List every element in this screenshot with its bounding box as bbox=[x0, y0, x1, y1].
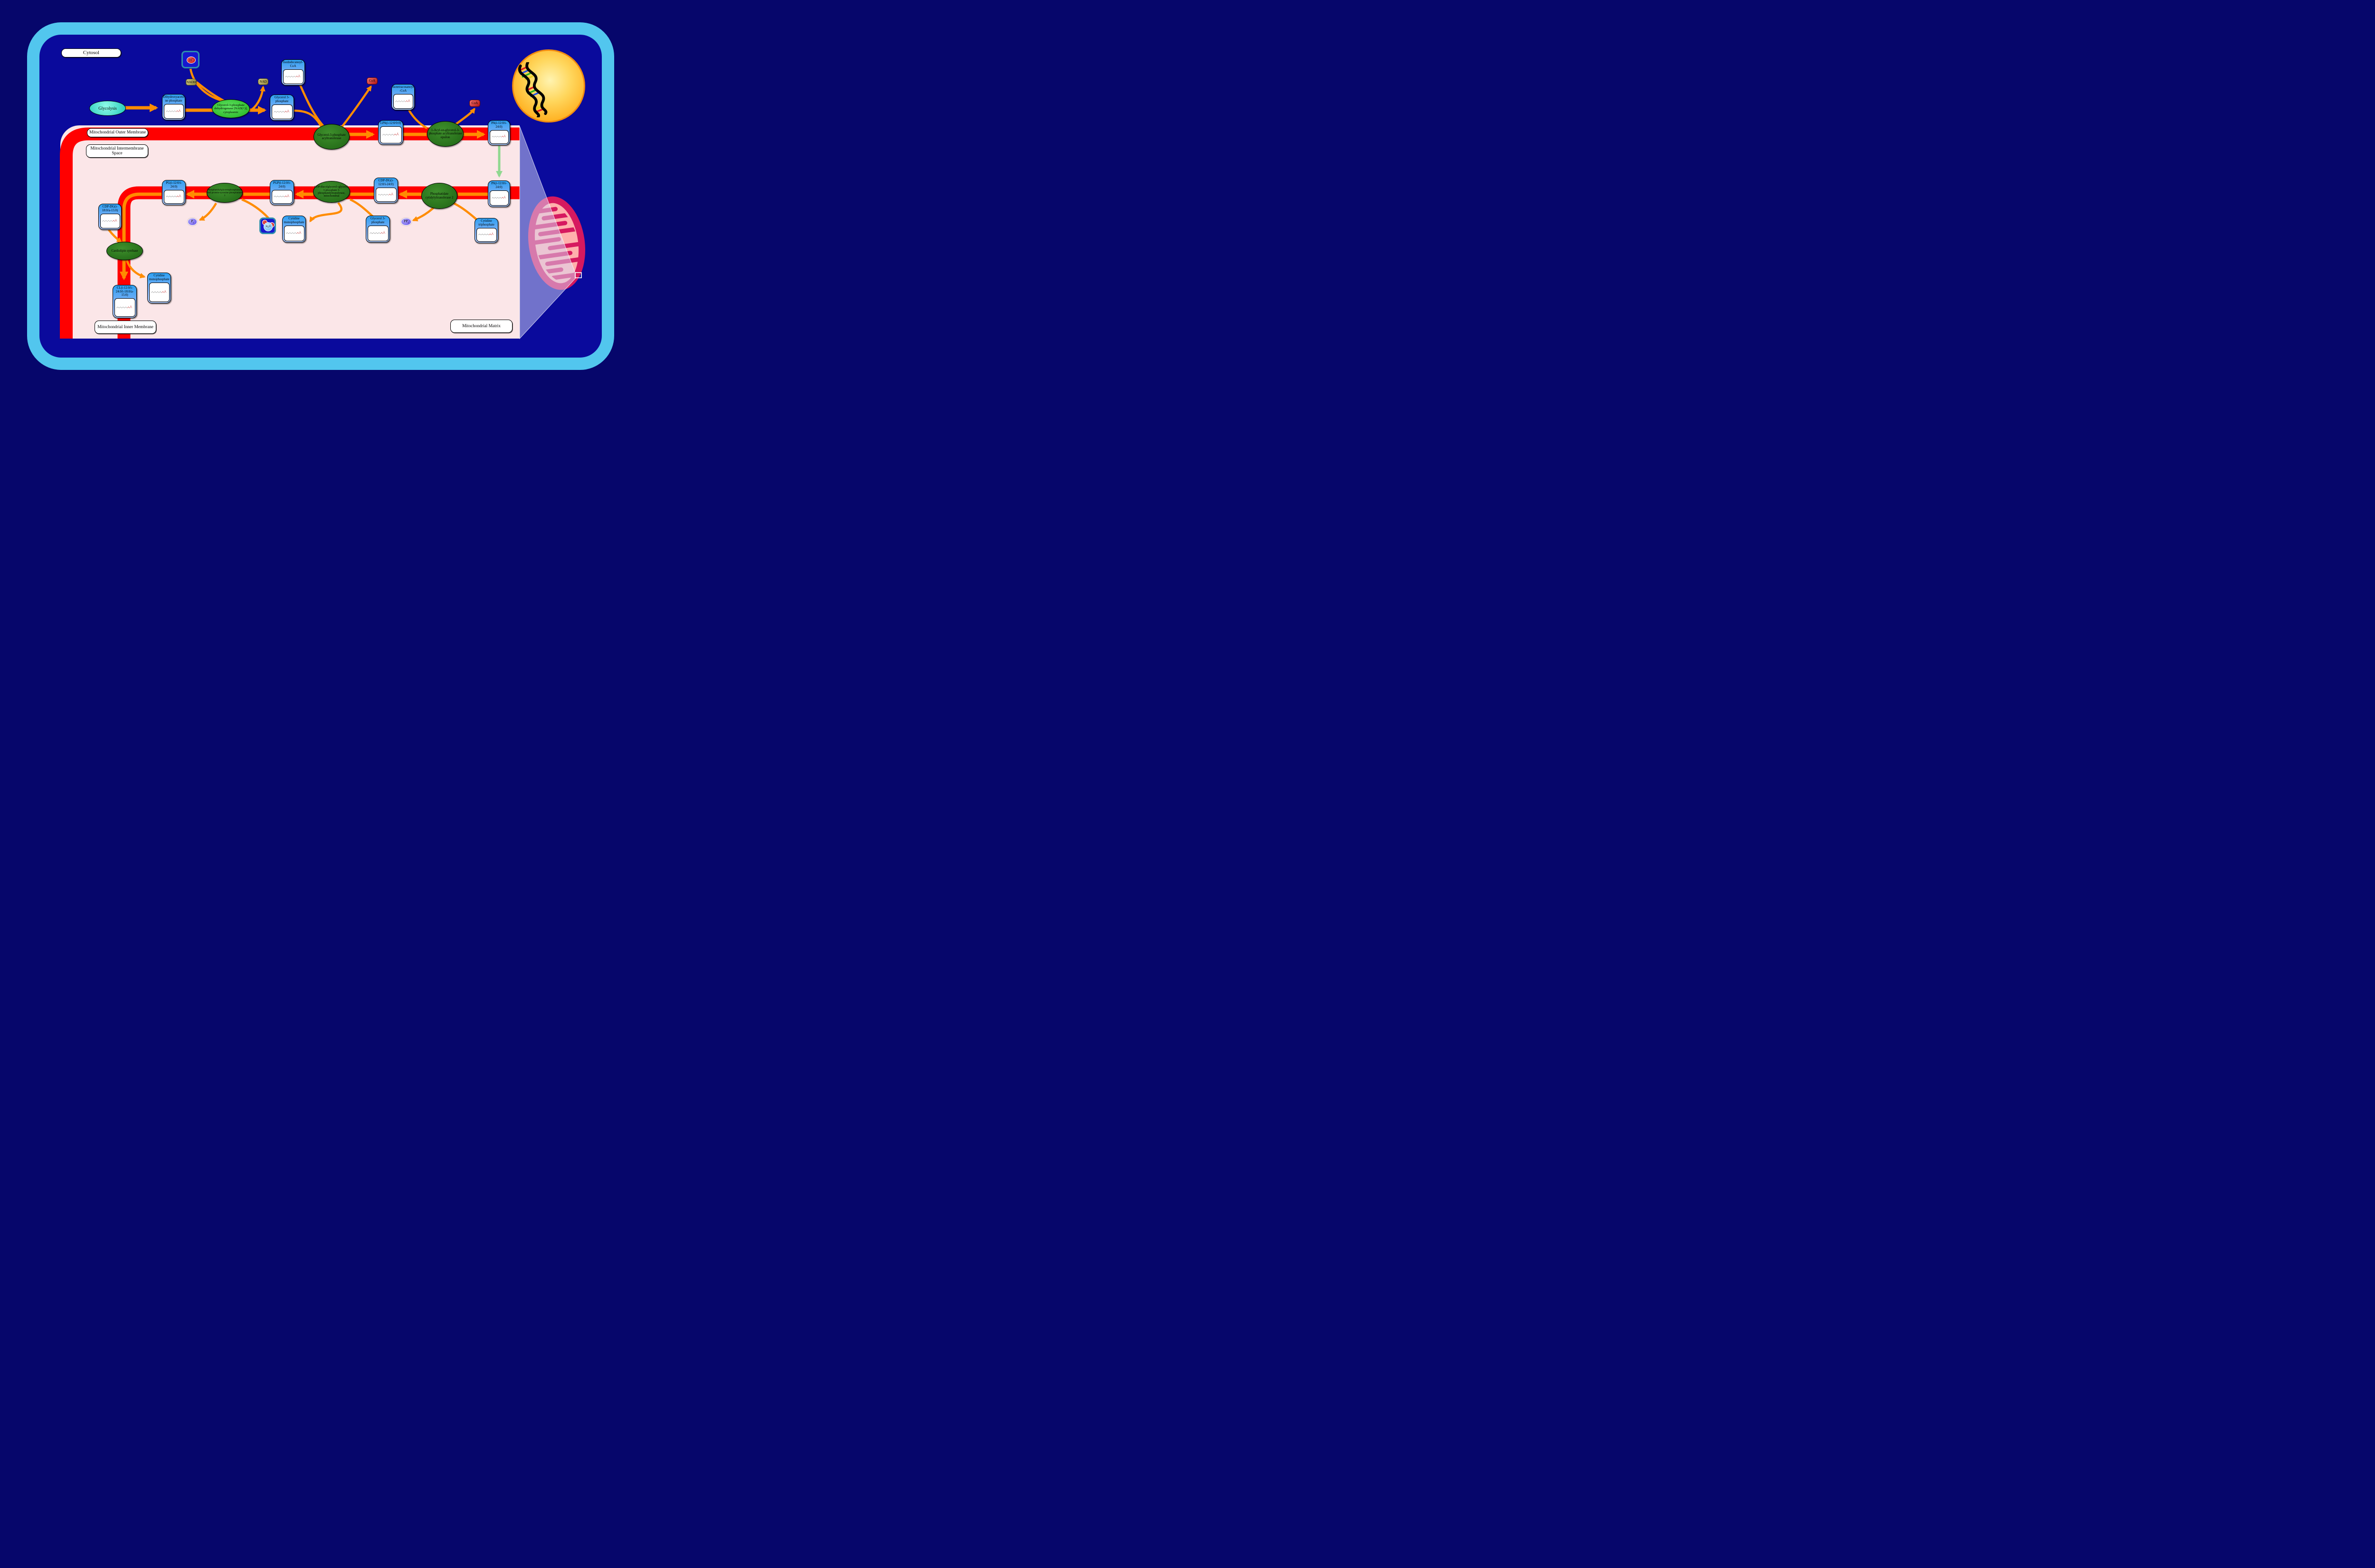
nucleus-illustration bbox=[512, 49, 585, 123]
cofactor-proton[interactable]: H+ bbox=[181, 51, 199, 68]
molecule-structure bbox=[395, 97, 411, 105]
molecule-structure bbox=[491, 194, 507, 202]
metabolite-pa-outer[interactable]: PA(i-12:0/i-24:0) bbox=[488, 120, 510, 145]
label-outer-membrane: Mitochondrial Outer Membrane bbox=[87, 128, 148, 137]
molecule-structure bbox=[491, 133, 507, 141]
metabolite-cmp-pgs[interactable]: Cytidine monophosphate bbox=[282, 216, 306, 243]
metabolite-pa-inner[interactable]: PA(i-12:0/i-24:0) bbox=[488, 180, 510, 207]
molecule-structure bbox=[273, 193, 290, 200]
metabolite-isotetracosanoyl-coa[interactable]: Isotetracosanoyl-CoA bbox=[391, 84, 415, 110]
cofactor-coa-gpat[interactable]: CoA bbox=[367, 77, 378, 85]
molecule-structure bbox=[478, 231, 494, 238]
cofactor-nad[interactable]: NAD bbox=[258, 78, 268, 85]
metabolite-cl[interactable]: CL(i-12:0/i-24:0/i-18:0/a-15:0) bbox=[113, 285, 137, 318]
cofactor-ppi[interactable]: PPi bbox=[401, 218, 411, 226]
enzyme-pgs1[interactable]: CDP-diacylglycerol--glycerol-3-phosphate… bbox=[313, 181, 350, 203]
metabolite-lpa[interactable]: LPA(i-12:0/0:0) bbox=[378, 120, 403, 145]
label-cytosol: Cytosol bbox=[61, 48, 121, 57]
cofactor-water[interactable]: H2O bbox=[259, 217, 276, 234]
pathway-canvas: Cytosol Mitochondrial Outer Membrane Mit… bbox=[0, 0, 641, 392]
process-glycolysis[interactable]: Glycolysis bbox=[89, 101, 126, 116]
metabolite-ctp[interactable]: Cytidine triphosphate bbox=[475, 218, 498, 243]
cofactor-nadh[interactable]: NADH bbox=[186, 79, 197, 85]
label-intermembrane-space: Mitochondrial Intermembrane Space bbox=[86, 144, 148, 158]
metabolite-cdp-dg[interactable]: CDP-DG(i-12:0/i-24:0) bbox=[374, 178, 398, 203]
molecule-structure bbox=[369, 229, 386, 237]
molecule-structure bbox=[165, 107, 181, 115]
metabolite-cdp-dg-2[interactable]: CDP-DG(i-18:0/a-15:0) bbox=[98, 204, 122, 230]
metabolite-cmp-cls[interactable]: Cytidine monophosphate bbox=[147, 273, 171, 303]
label-inner-membrane: Mitochondrial Inner Membrane bbox=[95, 321, 156, 334]
label-matrix: Mitochondrial Matrix bbox=[450, 320, 513, 333]
enzyme-cardiolipin-synthase[interactable]: Cardiolipin synthase bbox=[106, 242, 143, 260]
dna-helix-icon bbox=[516, 62, 550, 117]
molecule-structure bbox=[377, 191, 394, 198]
molecule-structure bbox=[102, 217, 118, 225]
metabolite-pg[interactable]: PG(i-12:0/i-24:0) bbox=[162, 180, 186, 205]
metabolite-isododecanoyl-coa[interactable]: Isododecanoyl-CoA bbox=[281, 59, 305, 85]
enzyme-ptpmt1[interactable]: Phosphatidylglycerophosphatase and prote… bbox=[207, 183, 243, 203]
molecule-structure bbox=[382, 130, 400, 139]
enzyme-agpat-epsilon[interactable]: 1-Acyl-sn-glycerol-3-phosphate acyltrans… bbox=[427, 121, 464, 147]
molecule-structure bbox=[116, 302, 133, 312]
molecule-structure bbox=[285, 229, 302, 237]
molecule-structure bbox=[285, 73, 301, 81]
metabolite-pgp[interactable]: PGP(i-12:0/i-24:0) bbox=[270, 180, 294, 205]
molecule-structure bbox=[151, 287, 167, 297]
enzyme-gpd1[interactable]: Glycerol-3-phosphate dehydrogenase [NAD(… bbox=[212, 99, 250, 118]
metabolite-g3p-matrix[interactable]: Glycerol 3-phosphate bbox=[366, 216, 390, 243]
cofactor-coa-agpat[interactable]: CoA bbox=[469, 100, 480, 107]
metabolite-g3p-cytosol[interactable]: Glycerol 3-phosphate bbox=[270, 94, 294, 121]
molecule-structure bbox=[165, 193, 182, 200]
proton-icon: H+ bbox=[187, 57, 196, 64]
enzyme-pcyt2[interactable]: Phosphatidate cytidylyltransferase 2 bbox=[421, 183, 457, 209]
cofactor-pi[interactable]: Pi bbox=[188, 218, 197, 226]
molecule-structure bbox=[273, 108, 290, 116]
water-molecule-icon: H2O bbox=[264, 222, 273, 231]
metabolite-dhap[interactable]: Dihydroxyacetone phosphate bbox=[162, 94, 185, 120]
enzyme-gpat[interactable]: Glycerol-3-phosphate acyltransferase bbox=[313, 124, 350, 150]
